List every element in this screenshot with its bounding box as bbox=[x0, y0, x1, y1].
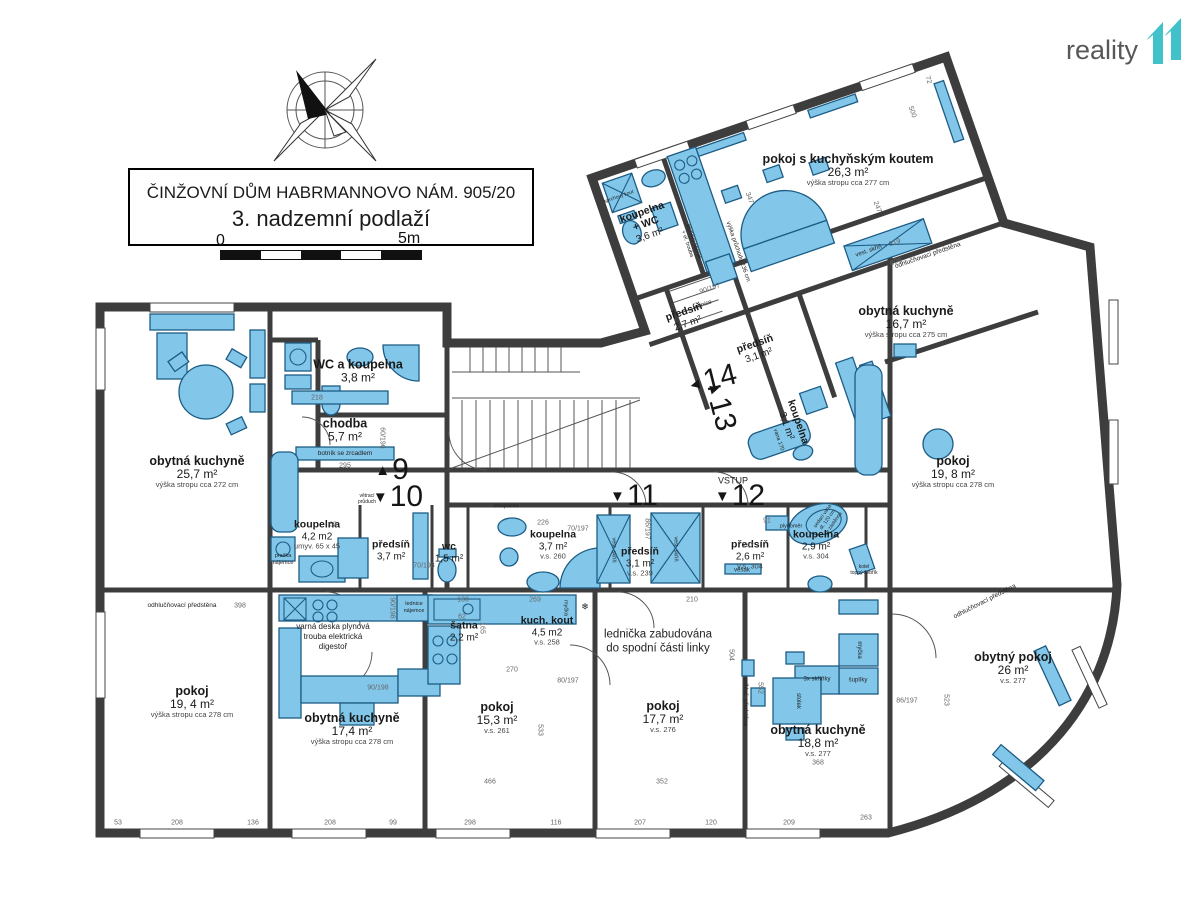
dimension-label: 120 bbox=[705, 820, 717, 827]
floorplan-page: ČINŽOVNÍ DŮM HABRMANNOVO NÁM. 905/20 3. … bbox=[0, 0, 1200, 902]
dimension-label: 70/197 bbox=[567, 526, 588, 533]
dimension-label: 99 bbox=[389, 820, 397, 827]
dimension-label: 263 bbox=[860, 815, 872, 822]
dimension-label: 91 bbox=[763, 518, 771, 525]
compass-rose bbox=[274, 59, 376, 161]
unit-9-arrow-icon: ▲ bbox=[375, 462, 390, 479]
annotation-label: odhlučňovací předstěna bbox=[147, 602, 216, 610]
annotation-label: vest. skříň bbox=[672, 536, 679, 561]
room-obytna-kuchyne-257: obytná kuchyně25,7 m²výška stropu cca 27… bbox=[149, 454, 244, 490]
dimension-label: 247 bbox=[742, 543, 754, 550]
dimension-label: 533 bbox=[537, 724, 544, 736]
room-pokoj-153: pokoj15,3 m²v.s. 261 bbox=[477, 700, 518, 736]
floor-title: 3. nadzemní podlaží bbox=[232, 206, 430, 232]
annotation-label: šuplíky bbox=[849, 677, 868, 685]
annotation-label: myčka bbox=[854, 641, 862, 658]
dimension-label: 62 bbox=[458, 614, 466, 621]
logo-text: reality bbox=[1066, 37, 1138, 64]
logo-11-mark bbox=[1142, 18, 1186, 64]
room-predsin-31: předsíň3,1 m²v.s. 239 bbox=[621, 546, 659, 577]
room-kuch-kout: kuch. kout4,5 m2v.s. 258 bbox=[521, 615, 574, 646]
room-obytna-kuchyne-167: obytná kuchyně16,7 m²výška stropu cca 27… bbox=[858, 304, 953, 340]
annotation-label: 3x skříňky bbox=[803, 676, 830, 684]
dimension-label: 218 bbox=[311, 395, 323, 402]
dimension-label: 86/197 bbox=[644, 518, 651, 539]
dimension-label: 207 bbox=[634, 820, 646, 827]
dimension-label: 209 bbox=[783, 820, 795, 827]
dimension-label: 136 bbox=[247, 820, 259, 827]
annotation-label: VSTUP bbox=[718, 475, 748, 486]
annotation-label: pračka nájemce bbox=[273, 553, 294, 567]
dimension-label: 90/198 bbox=[389, 597, 396, 618]
room-pokoj-198: pokoj19, 8 m²výška stropu cca 278 cm bbox=[912, 454, 995, 490]
dimension-label: 208 bbox=[324, 820, 336, 827]
annotation-label: botník se zrcadlem bbox=[318, 450, 373, 458]
dimension-label: 70/198 bbox=[413, 563, 434, 570]
dimension-label: 270 bbox=[506, 667, 518, 674]
dimension-label: 86/197 bbox=[896, 698, 917, 705]
unit-entrance-11: ▼11 bbox=[610, 479, 658, 513]
dimension-label: 226 bbox=[537, 520, 549, 527]
dimension-label: 90/198 bbox=[367, 685, 388, 692]
annotation-label: stolek bbox=[793, 693, 801, 709]
dimension-label: 466 bbox=[484, 779, 496, 786]
room-obytny-pokoj-26: obytný pokoj26 m²v.s. 277 bbox=[974, 650, 1052, 686]
title-block: ČINŽOVNÍ DŮM HABRMANNOVO NÁM. 905/20 3. … bbox=[128, 168, 534, 246]
dimension-label: 80/197 bbox=[557, 678, 578, 685]
dimension-label: 208 bbox=[171, 820, 183, 827]
annotation-label: větrací průduch bbox=[358, 493, 376, 506]
room-satna: šatna2,2 m² bbox=[450, 621, 478, 644]
staircase bbox=[452, 347, 640, 468]
unit-12-arrow-icon: ▼ bbox=[715, 488, 730, 505]
dimension-label: 298 bbox=[464, 820, 476, 827]
annotation-label: ❄ bbox=[581, 601, 589, 612]
annotation-label: věšák bbox=[734, 567, 750, 575]
annotation-label: lednička zabudována do spodní části link… bbox=[604, 628, 712, 657]
room-pokoj-194: pokoj19, 4 m²výška stropu cca 278 cm bbox=[151, 684, 234, 720]
unit-entrance-10: ▼10 bbox=[373, 480, 423, 514]
dimension-label: 53 bbox=[114, 820, 122, 827]
dimension-label: 398 bbox=[234, 603, 246, 610]
room-chodba: chodba5,7 m² bbox=[323, 416, 367, 443]
reality11-logo: reality bbox=[1066, 18, 1186, 64]
dimension-label: 69 bbox=[329, 522, 337, 529]
room-obytna-kuchyne-174: obytná kuchyně17,4 m²výška stropu cca 27… bbox=[304, 711, 399, 747]
annotation-label: plynoměr bbox=[780, 524, 803, 531]
dimension-label: 368 bbox=[812, 760, 824, 767]
annotation-label: myčka bbox=[562, 600, 569, 616]
rotated-wing bbox=[591, 53, 1055, 496]
dimension-label: 352 bbox=[656, 779, 668, 786]
room-predsin-37: předsíň3,7 m² bbox=[372, 540, 410, 563]
annotation-label: lednice nájemce bbox=[404, 601, 425, 615]
annotation-label: vest. skříň bbox=[610, 537, 617, 562]
floorplan-drawing bbox=[0, 0, 1200, 902]
dimension-label: 165 bbox=[479, 622, 486, 634]
scale-bar bbox=[220, 250, 422, 260]
dimension-label: 552 bbox=[757, 682, 764, 694]
unit-11-arrow-icon: ▼ bbox=[610, 488, 625, 505]
dimension-label: 523 bbox=[943, 694, 950, 706]
room-koupelna-37: koupelna3,7 m²v.s. 260 bbox=[530, 529, 576, 560]
room-koupelna-29: koupelna2,9 m²v.s. 304 bbox=[793, 529, 839, 560]
dimension-label: 60/196 bbox=[379, 427, 386, 448]
annotation-label: varná deska plynová trouba elektrická di… bbox=[296, 622, 369, 652]
room-wc-a-koupelna: WC a koupelna3,8 m² bbox=[313, 357, 403, 384]
annotation-label: odhluč. předstěna bbox=[740, 678, 748, 726]
dimension-label: 269 bbox=[529, 597, 541, 604]
room-wc-15: wc1,5 m² bbox=[435, 542, 463, 565]
room-pokoj-177: pokoj17,7 m²v.s. 276 bbox=[643, 699, 684, 735]
dimension-label: 116 bbox=[550, 820, 561, 827]
room-obytna-kuchyne-188: obytná kuchyně18,8 m²v.s. 277 bbox=[770, 723, 865, 759]
dimension-label: 295 bbox=[339, 463, 351, 470]
unit-14-arrow-icon: ◄ bbox=[686, 374, 705, 394]
dimension-label: 210 bbox=[686, 597, 698, 604]
dimension-label: 130 bbox=[457, 597, 469, 604]
annotation-label: stoupačka bbox=[493, 504, 518, 511]
scale-five-label: 5m bbox=[398, 230, 420, 248]
scale-zero-label: 0 bbox=[216, 232, 225, 250]
building-title: ČINŽOVNÍ DŮM HABRMANNOVO NÁM. 905/20 bbox=[147, 183, 515, 203]
dimension-label: 504 bbox=[728, 649, 735, 661]
annotation-label: kotel topný žebřík bbox=[850, 564, 877, 577]
room-pokoj-s-kuch-koutem: pokoj s kuchyňským koutem26,3 m²výška st… bbox=[763, 152, 934, 188]
